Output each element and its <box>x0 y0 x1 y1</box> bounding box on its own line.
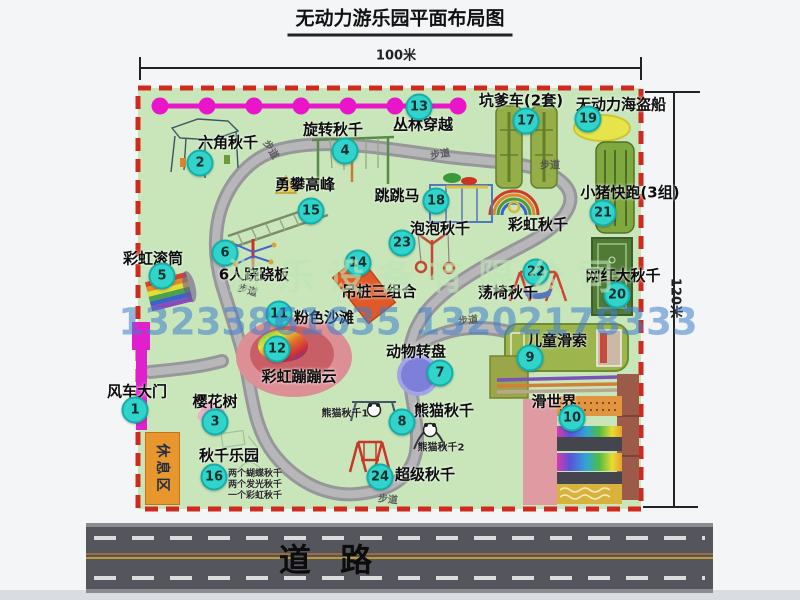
screenshot-root: 无动力游乐园平面布局图 100米 120米 <box>0 0 800 600</box>
poi-badge-7: 7 <box>427 360 454 387</box>
poi-badge-13: 13 <box>406 94 433 121</box>
poi-label-7: 动物转盘 <box>386 341 446 362</box>
poi-badge-15: 15 <box>298 198 325 225</box>
poi-badge-2: 2 <box>187 150 214 177</box>
poi-badge-17: 17 <box>513 108 540 135</box>
poi-badge-1: 1 <box>122 397 149 424</box>
poi-label-24: 超级秋千 <box>395 464 455 485</box>
poi-badge-4: 4 <box>332 138 359 165</box>
poi-badge-10: 10 <box>559 405 586 432</box>
poi-label-8: 熊猫秋千 <box>414 400 474 421</box>
poi-badge-8: 8 <box>389 409 416 436</box>
poi-badge-5: 5 <box>149 263 176 290</box>
poi-label-4: 旋转秋千 <box>303 119 363 140</box>
poi-badge-19: 19 <box>575 106 602 133</box>
watermark-phone: 13233861635 13202178333 <box>118 301 697 344</box>
poi-badge-21: 21 <box>590 200 617 227</box>
watermark-company: 游乐设备有限公司 <box>228 248 628 300</box>
poi-badge-9: 9 <box>517 345 544 372</box>
poi-label-21: 小猪快跑(3组) <box>580 182 679 203</box>
poi-badge-3: 3 <box>202 409 229 436</box>
poi-label-15: 勇攀高峰 <box>275 174 335 195</box>
poi-label-23: 泡泡秋千 <box>410 218 470 239</box>
poi-label-18: 跳跳马 <box>374 185 419 206</box>
poi-label-2: 六角秋千 <box>198 132 258 153</box>
poi-label-12: 彩虹蹦蹦云 <box>261 366 336 387</box>
poi-label-16: 秋千乐园 <box>199 445 259 466</box>
poi-badge-18: 18 <box>423 188 450 215</box>
poi-badge-24: 24 <box>367 464 394 491</box>
poi-badge-16: 16 <box>201 464 228 491</box>
